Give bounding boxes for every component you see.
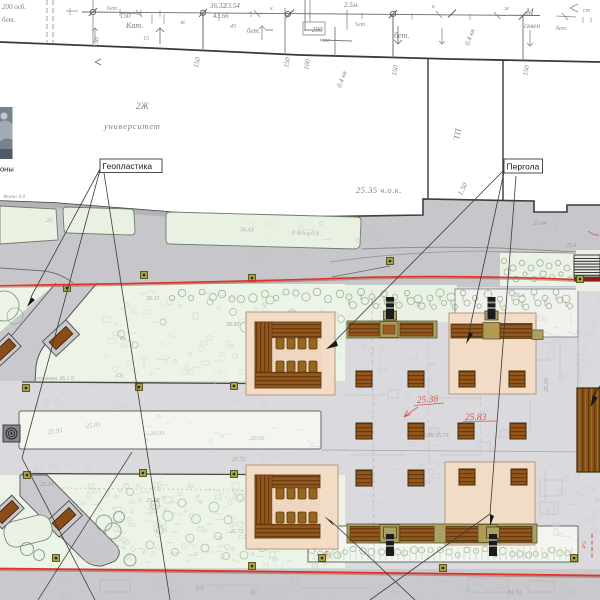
svg-text:Геопластика: Геопластика	[103, 161, 153, 171]
svg-text:36.32: 36.32	[209, 2, 226, 10]
svg-text:26.43: 26.43	[240, 226, 254, 234]
svg-text:ж: ж	[504, 6, 510, 12]
svg-text:26.03: 26.03	[250, 435, 265, 442]
svg-text:сквен: сквен	[524, 22, 541, 30]
svg-text:2Ж: 2Ж	[136, 101, 150, 111]
svg-text:стоянка 26.1 0: стоянка 26.1 0	[36, 376, 74, 382]
svg-text:200 осб.: 200 осб.	[2, 3, 26, 11]
svg-text:26.03: 26.03	[150, 430, 165, 437]
svg-text:и8: и8	[323, 550, 330, 557]
svg-text:25.35 ч.о.к.: 25.35 ч.о.к.	[356, 185, 402, 195]
svg-text:ст: ст	[583, 8, 591, 14]
svg-text:81.50: 81.50	[508, 590, 522, 596]
svg-text:25.73: 25.73	[230, 529, 244, 535]
svg-text:5ет: 5ет	[355, 22, 366, 28]
svg-text:45: 45	[230, 23, 236, 30]
svg-text:4%: 4%	[581, 541, 588, 549]
svg-text:26.10: 26.10	[544, 379, 550, 393]
svg-text:бет.: бет.	[247, 27, 261, 35]
svg-text:43.66: 43.66	[213, 12, 229, 20]
svg-text:Q: Q	[262, 301, 267, 308]
svg-text:бет.: бет.	[556, 25, 568, 32]
svg-text:юг: юг	[323, 38, 330, 44]
svg-text:20: 20	[46, 217, 53, 224]
svg-text:15: 15	[143, 36, 149, 42]
svg-text:оны: оны	[0, 165, 14, 174]
svg-text:25.4: 25.4	[566, 242, 577, 249]
svg-text:25.72: 25.72	[232, 457, 246, 463]
svg-text:к: к	[432, 4, 435, 10]
svg-text:26.34: 26.34	[40, 481, 54, 488]
svg-text:1): 1)	[250, 589, 255, 596]
svg-text:6ет: 6ет	[107, 6, 118, 12]
svg-text:к: к	[270, 6, 273, 12]
svg-text:д 0: д 0	[196, 585, 204, 592]
svg-text:бет.: бет.	[394, 31, 409, 40]
svg-text:2.5м.: 2.5м.	[344, 1, 359, 9]
svg-text:26.4: 26.4	[514, 292, 525, 299]
svg-text:23.54: 23.54	[224, 2, 240, 10]
svg-text:26.31: 26.31	[146, 296, 160, 302]
svg-text:М: М	[525, 7, 534, 17]
svg-text:25.28: 25.28	[146, 498, 160, 504]
svg-text:Фото 4.0: Фото 4.0	[3, 193, 25, 200]
svg-text:университет: университет	[103, 121, 161, 131]
svg-text:ж: ж	[180, 20, 186, 26]
svg-text:(3): (3)	[116, 372, 123, 379]
svg-text:25.64: 25.64	[533, 220, 547, 227]
svg-text:26.83: 26.83	[226, 322, 240, 328]
svg-text:200: 200	[312, 26, 323, 34]
svg-text:Бе: Бе	[119, 336, 127, 342]
svg-text:бет.: бет.	[2, 16, 16, 24]
svg-text:0 4сб.ц.0.9: 0 4сб.ц.0.9	[292, 229, 319, 237]
svg-text:Пергола: Пергола	[507, 162, 540, 172]
svg-text:Кат.: Кат.	[125, 21, 143, 30]
